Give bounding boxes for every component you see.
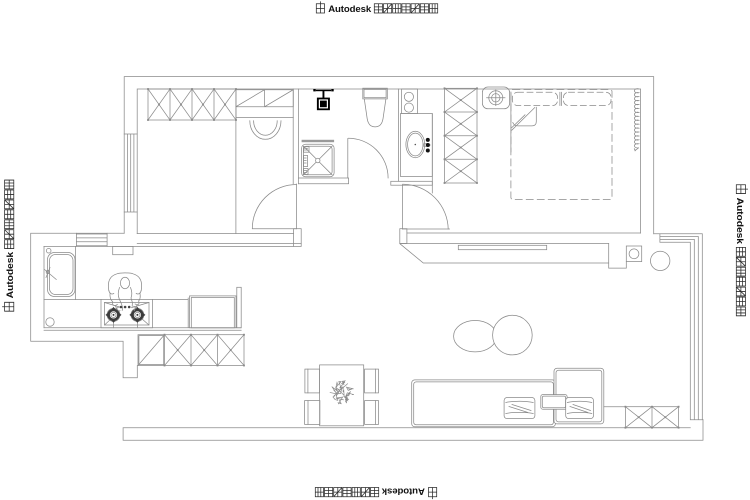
svg-text:Autodesk: Autodesk	[381, 485, 425, 496]
svg-text:Autodesk: Autodesk	[5, 251, 16, 298]
svg-text:Autodesk: Autodesk	[734, 198, 745, 245]
svg-text:Autodesk: Autodesk	[328, 4, 372, 15]
